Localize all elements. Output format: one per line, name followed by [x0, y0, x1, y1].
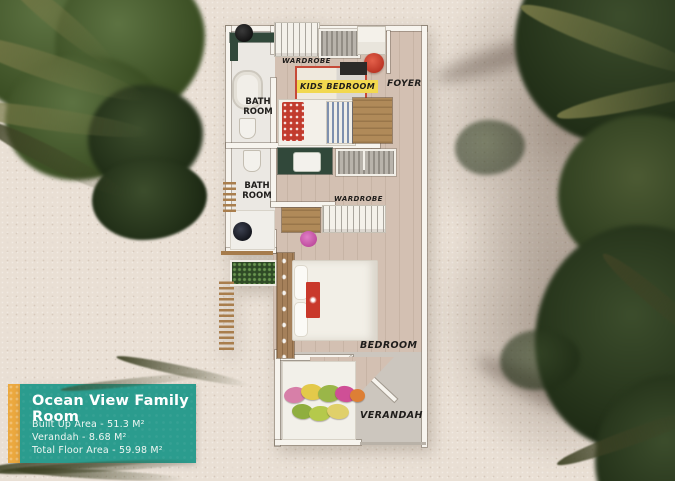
room-label-bathroom-top: BATH ROOM	[238, 97, 278, 117]
room-label-verandah: VERANDAH	[360, 410, 423, 421]
wall-verandah-left	[275, 350, 280, 446]
planter-box	[230, 260, 277, 286]
vanity-sink	[293, 152, 321, 172]
verandah-edge	[360, 442, 426, 445]
desk-chair	[300, 231, 317, 247]
room-label-wardrobe-top: WARDROBE	[282, 57, 331, 65]
room-label-bathroom-mid: BATH ROOM	[237, 181, 277, 201]
kids-bed-striped-duvet	[326, 101, 354, 144]
wood-beam	[221, 251, 273, 255]
floorplan-scene: WARDROBE KIDS BEDROOM FOYER BATH ROOM BA…	[0, 0, 675, 481]
room-label-kids-bedroom: KIDS BEDROOM	[297, 80, 378, 93]
toilet	[239, 118, 256, 139]
towel-ladder	[223, 182, 236, 212]
outer-wall-right	[422, 26, 427, 447]
wardrobe-unit	[274, 22, 320, 57]
info-card-stat-verandah: Verandah - 8.68 M²	[32, 431, 126, 445]
wood-screen	[219, 280, 234, 350]
desk	[282, 208, 320, 232]
round-basin-icon	[235, 24, 253, 42]
toilet	[243, 150, 261, 172]
kids-bed-quilt	[282, 102, 304, 141]
room-label-bedroom: BEDROOM	[360, 340, 417, 351]
stool	[364, 53, 384, 73]
round-basin-icon	[233, 222, 252, 241]
room-label-foyer: FOYER	[387, 79, 422, 89]
wall-verandah-bottom	[275, 440, 361, 445]
bench-divider	[363, 151, 365, 170]
info-card-accent-strip	[8, 384, 20, 463]
info-card: Ocean View Family Room Built Up Area - 5…	[20, 384, 196, 463]
door-mat	[340, 62, 367, 75]
wardrobe-unit	[322, 205, 386, 233]
entry-door-leaf	[387, 31, 390, 73]
cabinet	[357, 26, 386, 55]
bench	[336, 149, 396, 176]
luggage-bench	[319, 29, 360, 58]
room-label-wardrobe-mid: WARDROBE	[334, 195, 383, 203]
info-card-stat-total: Total Floor Area - 59.98 M²	[32, 444, 163, 458]
bed-runner-medallion	[309, 296, 317, 304]
info-card-stat-built-up: Built Up Area - 51.3 M²	[32, 418, 145, 432]
wooden-steps	[353, 98, 392, 143]
